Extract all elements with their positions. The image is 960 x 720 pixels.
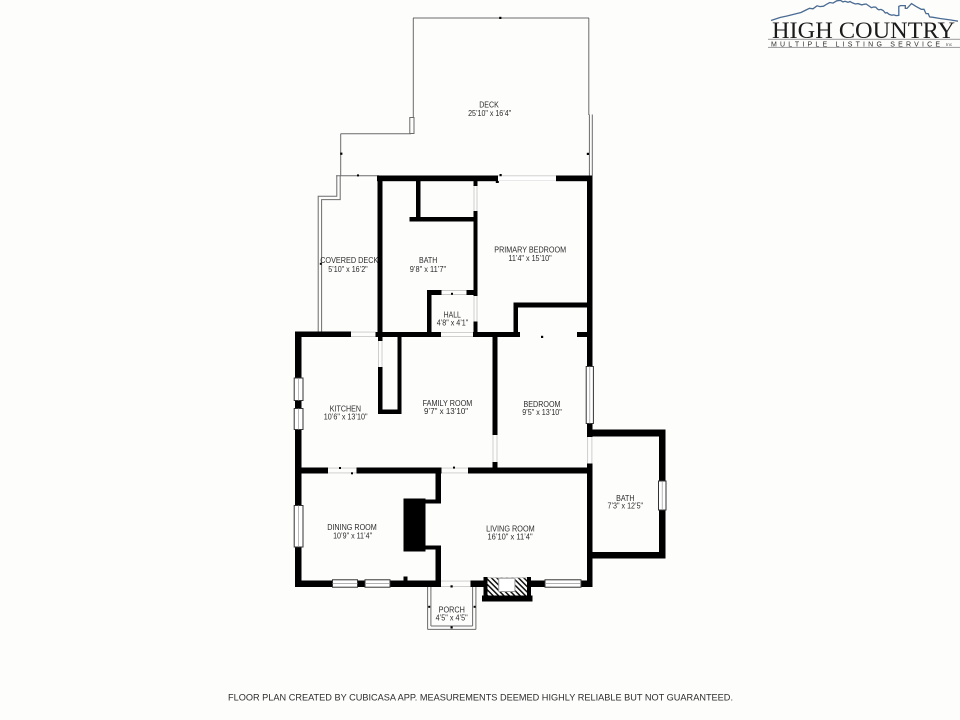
svg-text:5’10" x 16’2": 5’10" x 16’2" — [328, 265, 368, 274]
svg-text:9’7" x 13’10": 9’7" x 13’10" — [424, 407, 468, 416]
svg-text:COVERED DECK: COVERED DECK — [320, 255, 378, 265]
svg-text:10’6" x 13’10": 10’6" x 13’10" — [324, 413, 368, 422]
svg-text:7’3" x 12’5": 7’3" x 12’5" — [608, 502, 644, 511]
svg-text:4’8" x 4’1": 4’8" x 4’1" — [437, 319, 469, 328]
svg-text:4’5" x 4’5": 4’5" x 4’5" — [436, 613, 468, 622]
svg-text:25’10" x 16’4": 25’10" x 16’4" — [468, 109, 511, 118]
svg-text:11’4" x 15’10": 11’4" x 15’10" — [508, 254, 551, 263]
svg-text:BATH: BATH — [419, 255, 437, 265]
svg-text:10’9" x 11’4": 10’9" x 11’4" — [333, 531, 372, 540]
svg-text:9’5" x 13’10": 9’5" x 13’10" — [522, 408, 562, 417]
svg-text:9’8" x 11’7": 9’8" x 11’7" — [410, 265, 447, 274]
svg-text:FLOOR PLAN CREATED BY CUBICASA: FLOOR PLAN CREATED BY CUBICASA APP. MEAS… — [228, 693, 733, 703]
svg-text:Inc: Inc — [946, 42, 953, 47]
svg-text:16’10" x 11’4": 16’10" x 11’4" — [488, 533, 533, 542]
